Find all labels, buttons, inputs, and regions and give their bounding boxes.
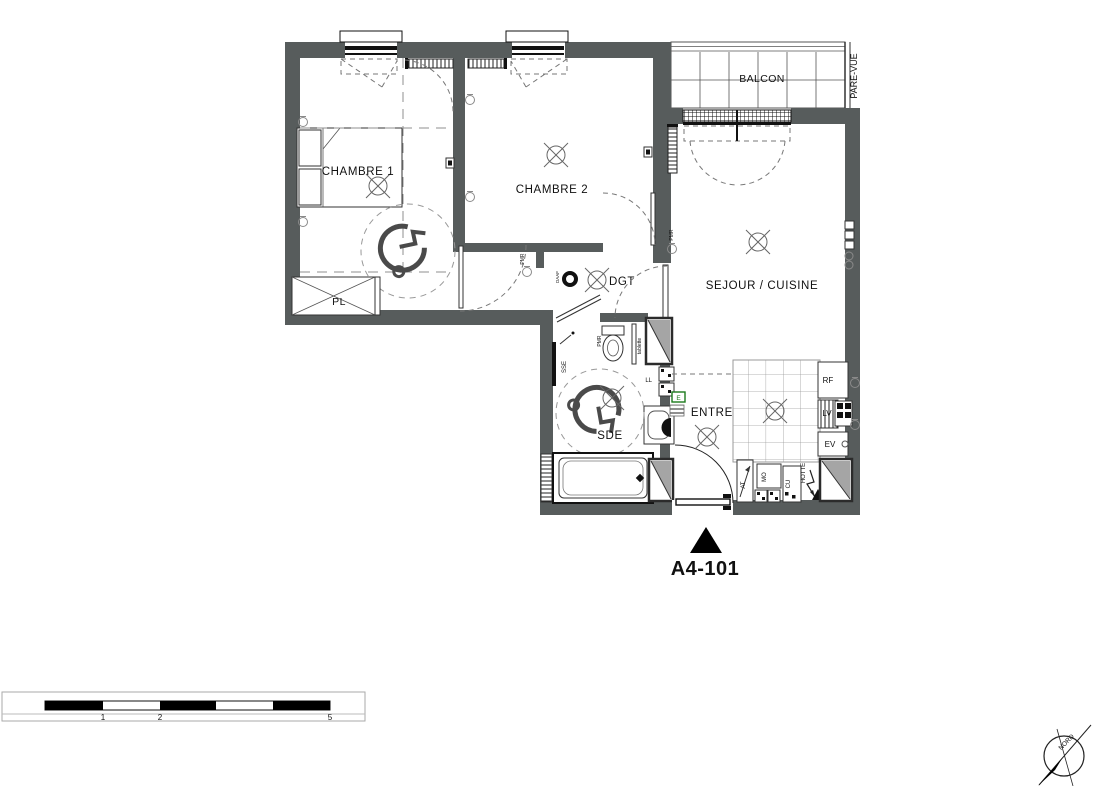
unit-marker: A4-101 [671, 527, 740, 580]
balcony-label: BALCON [739, 73, 785, 85]
scale-tick-1: 1 [101, 713, 106, 722]
entrance-door [672, 445, 733, 515]
tablette-label: tablette [637, 338, 643, 355]
door-sejour [615, 265, 668, 319]
wall-toilet-nook [600, 313, 648, 322]
scale-tick-5: 5 [328, 713, 333, 722]
at-cabinet [737, 460, 753, 502]
scale-bar: 1 2 5 [2, 692, 365, 722]
sse-label: SSE [562, 361, 568, 373]
chambre2-label: CHAMBRE 2 [516, 184, 589, 196]
ll-label: LL [645, 378, 652, 384]
sejour-label: SEJOUR / CUISINE [706, 280, 818, 292]
shaft-entree [649, 459, 673, 501]
pmr-circle-sde [556, 369, 644, 457]
pmr-label-3: PMR [597, 335, 603, 347]
daaf-label: DAAF [555, 271, 560, 283]
smoke-detector-daaf [564, 273, 576, 285]
ev-label: EV [825, 440, 836, 449]
pmr-label-2: PMR [669, 229, 675, 241]
towel-radiator-sse [552, 332, 575, 387]
dgt-label: DGT [609, 276, 635, 288]
microwave-mo [755, 464, 781, 502]
wall-top-mid [397, 42, 512, 58]
balcony-french-door [683, 110, 791, 185]
floor-plan-page: BALCON PARE-VUE [0, 0, 1098, 786]
floor-plan-drawing: BALCON PARE-VUE [0, 0, 1098, 786]
mo-label: MO [762, 472, 768, 482]
wall-sejour-top-a [671, 108, 683, 124]
at-label: AT [741, 481, 747, 489]
window-chambre2 [506, 31, 568, 87]
compass: NORD [1038, 725, 1091, 786]
kitchen-bottom-row: AT MO CU HOTTE [737, 460, 824, 502]
shaft-sde [646, 318, 672, 364]
radiator-sejour [667, 124, 678, 173]
toilet [602, 326, 624, 361]
unit-label: A4-101 [671, 558, 740, 580]
wall-chambre2-bottom [453, 243, 603, 252]
radiator-chambre2 [468, 58, 507, 69]
cu-label: CU [786, 480, 792, 489]
scale-tick-2: 2 [158, 713, 163, 722]
hotte-label: HOTTE [801, 463, 807, 483]
shelf-tablette [632, 324, 636, 364]
unit-triangle [690, 527, 722, 553]
balcony: BALCON PARE-VUE [671, 42, 859, 108]
rf-label: RF [823, 376, 834, 385]
lv-label: LV [822, 409, 832, 418]
wall-partition-ch1-ch2 [453, 58, 465, 245]
door-sde [556, 295, 601, 322]
pare-vue-label: PARE-VUE [849, 53, 859, 98]
radiator-chambre1 [405, 58, 453, 69]
wall-stub-dgt [536, 252, 544, 268]
window-chambre1 [340, 31, 402, 87]
pl-label: PL [332, 296, 346, 308]
chambre1-label: CHAMBRE 1 [322, 166, 395, 178]
pmr-label-1: PMR [520, 253, 526, 265]
panel-e-label: E [676, 395, 681, 402]
washbasin [644, 406, 674, 444]
window-bathroom [541, 454, 552, 502]
sde-label: SDE [597, 430, 622, 442]
bathtub [553, 453, 653, 503]
door-chambre2 [603, 193, 655, 245]
door-chambre1 [459, 245, 526, 311]
shaft-kitchen [820, 459, 852, 501]
hob-icon [835, 401, 852, 426]
